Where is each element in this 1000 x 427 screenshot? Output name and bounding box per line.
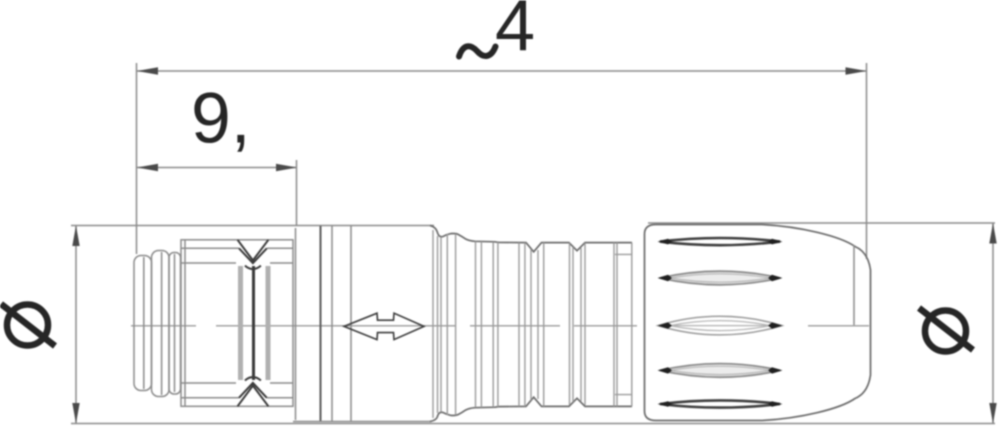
svg-text:9,: 9, xyxy=(191,79,251,159)
svg-text:4: 4 xyxy=(495,0,535,67)
